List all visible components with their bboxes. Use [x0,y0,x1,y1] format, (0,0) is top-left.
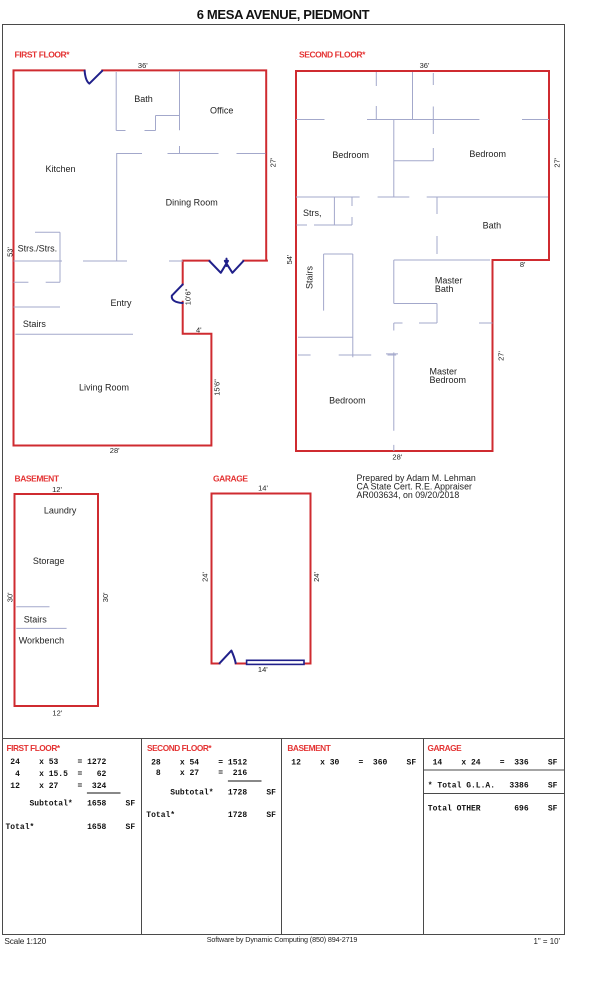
svg-text:24 x 53 = 1272: 24 x 53 = 1272 [6,758,107,767]
svg-text:Stairs: Stairs [24,615,48,625]
svg-text:Office: Office [210,106,233,116]
svg-text:Dining Room: Dining Room [166,198,218,208]
svg-text:1" = 10': 1" = 10' [534,937,561,946]
svg-text:GARAGE: GARAGE [213,474,248,484]
svg-text:SECOND FLOOR*: SECOND FLOOR* [147,743,212,753]
svg-text:28': 28' [392,452,402,461]
svg-text:27': 27' [553,157,562,167]
svg-text:SECOND FLOOR*: SECOND FLOOR* [299,50,366,60]
svg-text:Entry: Entry [110,298,132,308]
svg-text:Total OTHER 696 SF: Total OTHER 696 SF [428,805,558,814]
svg-text:53': 53' [5,247,14,257]
svg-text:FIRST FLOOR*: FIRST FLOOR* [7,743,61,753]
svg-text:AR003634, on 09/20/2018: AR003634, on 09/20/2018 [357,490,460,500]
svg-text:24': 24' [312,572,321,582]
svg-text:Bedroom: Bedroom [430,375,467,385]
svg-text:Bath: Bath [483,221,502,231]
svg-text:8': 8' [520,260,526,269]
svg-text:54': 54' [285,254,294,264]
svg-text:28': 28' [110,446,120,455]
svg-text:14': 14' [258,665,268,674]
svg-text:Kitchen: Kitchen [45,164,75,174]
svg-text:Software by Dynamic Computing: Software by Dynamic Computing (850) 894-… [207,935,358,944]
svg-text:FIRST FLOOR*: FIRST FLOOR* [15,50,71,60]
svg-text:8 x 27 = 216: 8 x 27 = 216 [146,769,247,778]
svg-text:6 MESA AVENUE, PIEDMONT: 6 MESA AVENUE, PIEDMONT [197,7,370,22]
svg-text:Laundry: Laundry [44,506,77,516]
svg-text:14 x 24 = 336 SF: 14 x 24 = 336 SF [428,758,558,767]
svg-text:Living Room: Living Room [79,383,129,393]
svg-text:GARAGE: GARAGE [428,743,463,753]
svg-text:27': 27' [497,351,506,361]
svg-text:BASEMENT: BASEMENT [15,474,60,484]
svg-text:30': 30' [101,592,110,602]
svg-text:12': 12' [52,709,62,718]
svg-text:Total* 1728 SF: Total* 1728 SF [146,811,276,820]
svg-text:4': 4' [196,325,202,334]
svg-text:Bedroom: Bedroom [469,149,506,159]
svg-text:36': 36' [138,61,148,70]
svg-text:Strs,: Strs, [303,208,322,218]
svg-text:Total* 1658 SF: Total* 1658 SF [6,823,136,832]
svg-text:Stairs: Stairs [305,266,315,290]
svg-text:Scale 1:120: Scale 1:120 [4,936,46,946]
svg-text:36': 36' [420,61,430,70]
svg-text:Bath: Bath [134,94,153,104]
svg-text:BASEMENT: BASEMENT [287,743,330,753]
svg-text:Strs./Strs.: Strs./Strs. [18,244,58,254]
svg-text:4 x 15.5 = 62: 4 x 15.5 = 62 [6,770,107,779]
svg-text:Bath: Bath [435,284,454,294]
svg-text:Workbench: Workbench [19,636,64,646]
svg-text:* Total G.L.A. 3386 SF: * Total G.L.A. 3386 SF [428,781,558,790]
svg-text:12 x 30 = 360 SF: 12 x 30 = 360 SF [287,758,417,767]
svg-text:24': 24' [200,572,209,582]
svg-text:Subtotal* 1728 SF: Subtotal* 1728 SF [146,788,276,797]
svg-text:12': 12' [52,485,62,494]
svg-text:27': 27' [269,157,278,167]
svg-text:Bedroom: Bedroom [332,150,369,160]
svg-text:10'6": 10'6" [184,288,193,305]
svg-text:30': 30' [6,592,15,602]
svg-text:12 x 27 = 324: 12 x 27 = 324 [6,782,107,791]
svg-text:Subtotal* 1658 SF: Subtotal* 1658 SF [6,799,136,808]
svg-text:15'6": 15'6" [212,379,221,396]
svg-text:Bedroom: Bedroom [329,396,366,406]
svg-text:Storage: Storage [33,556,65,566]
svg-text:14': 14' [258,484,268,493]
svg-text:28 x 54 = 1512: 28 x 54 = 1512 [146,758,247,767]
svg-text:Stairs: Stairs [23,319,47,329]
